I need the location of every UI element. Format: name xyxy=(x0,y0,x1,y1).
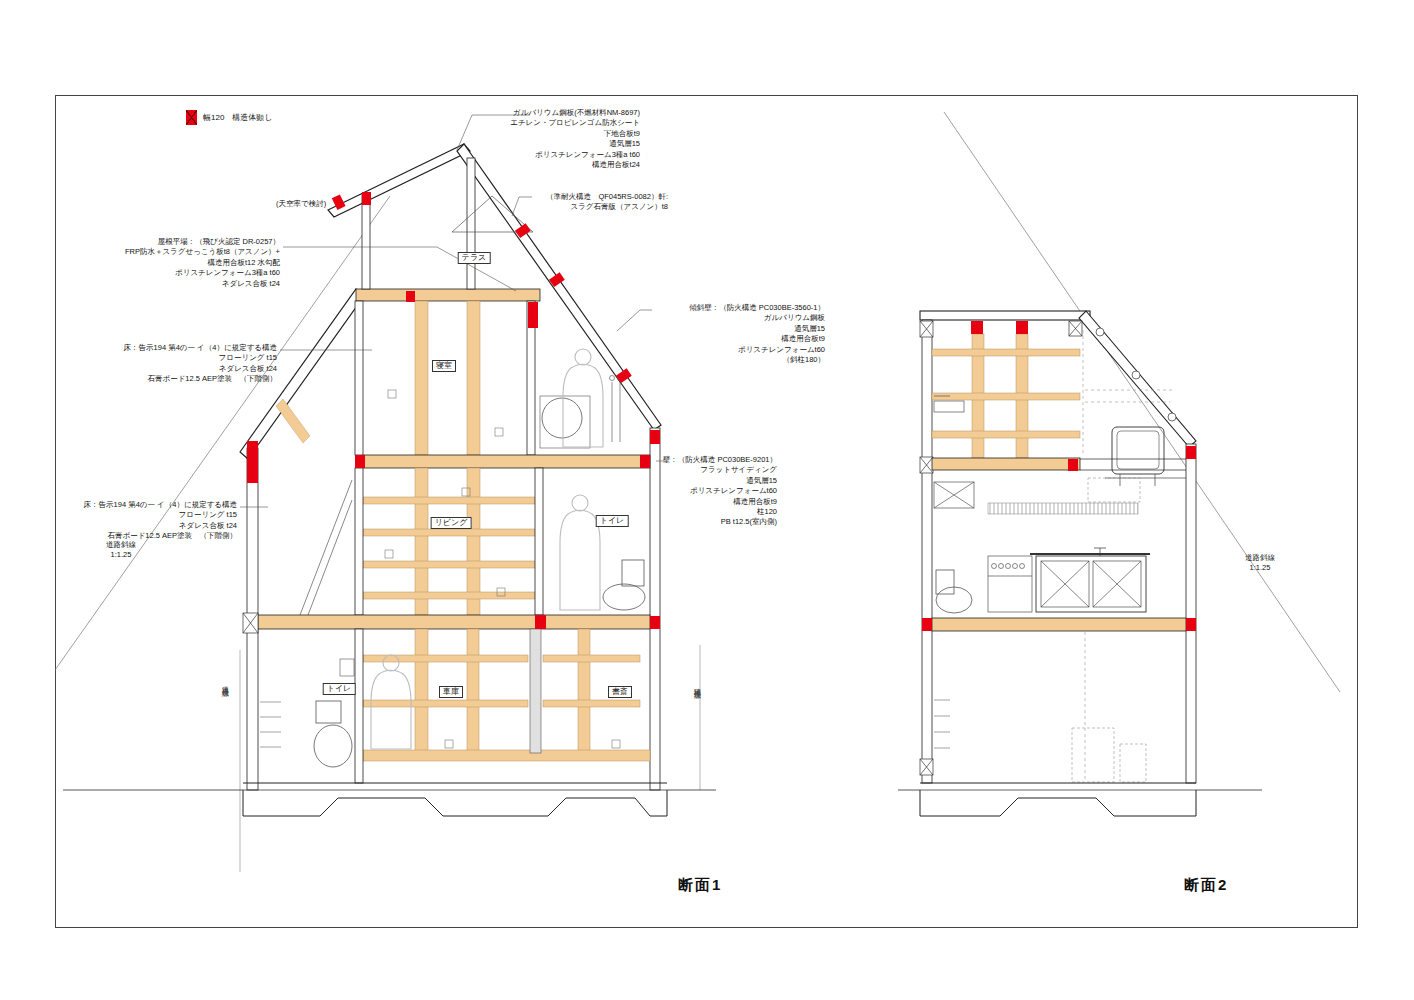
hatch-box xyxy=(243,613,258,633)
hatch-boxes-2 xyxy=(920,321,1082,775)
road-boundary-label: 道路境界線 xyxy=(220,680,230,685)
room-label-terrace: テラス xyxy=(458,252,491,264)
room-label-living: リビング xyxy=(431,517,472,529)
room-label-study: 書斎 xyxy=(608,686,632,698)
legend-red-swatch xyxy=(186,110,197,125)
ground-structure xyxy=(363,629,650,761)
ladder-rungs-left xyxy=(260,702,281,747)
terrace-deck xyxy=(356,289,540,301)
neighbor-boundary-label: 隣地境界線 xyxy=(692,682,702,687)
floor1-note: 床：告示194 第4の一 イ（4）に規定する構造 フローリング t15 ネダレス… xyxy=(17,500,237,542)
shower-fixture xyxy=(610,376,623,443)
flat-roof-note: 屋根平場：（飛び火認定 DR-0257） FRP防水＋スラグせっこう板t8（アス… xyxy=(60,237,280,289)
upper-cabinet-dashed xyxy=(1088,478,1140,502)
section1-title: 断面1 xyxy=(678,876,722,895)
floor-slab-2 xyxy=(932,618,1186,631)
inclined-wall-note: 傾斜壁：（防火構造 PC030BE-3560-1） ガルバリウム鋼板 通気層15… xyxy=(585,303,825,365)
human-figures xyxy=(371,349,603,749)
foundation-2 xyxy=(920,783,1196,816)
hidden-lines xyxy=(1083,330,1175,780)
kitchen-shelf xyxy=(988,556,1032,612)
toilet-fixture-2f xyxy=(603,560,645,610)
bathtub xyxy=(540,396,590,448)
road-slope-note-right: 道路斜線 1:1.25 xyxy=(1232,553,1288,574)
toilet-fixture-2 xyxy=(936,570,972,613)
washbasin-mid xyxy=(934,482,974,508)
legend-label: 幅120 構造体顕し xyxy=(203,112,273,123)
living-structure xyxy=(363,468,535,615)
toilet-fixture-1f xyxy=(314,659,354,767)
sky-factor-note: (天空率で検討) xyxy=(276,199,386,209)
room-label-toilet-lower: トイレ xyxy=(323,683,356,695)
roof-assembly-note: ガルバリウム鋼板(不燃材料NM-8697) エチレン・プロピレンゴム防水シート … xyxy=(340,108,640,170)
kitchen-counter xyxy=(1030,548,1150,612)
stairs xyxy=(300,480,352,615)
bathtub-2 xyxy=(1105,427,1186,486)
room-label-bedroom: 寝室 xyxy=(432,360,456,372)
floor2-note: 床：告示194 第4の一 イ（4）に規定する構造 フローリング t15 ネダレス… xyxy=(57,343,277,385)
tile-band xyxy=(988,503,1138,514)
drawing-sheet: { "colors": { "red": "#e60012", "wood": … xyxy=(0,0,1414,1000)
legend: 幅120 構造体顕し xyxy=(186,110,273,125)
future-equipment-dashed xyxy=(1072,728,1146,782)
bedroom-posts xyxy=(415,301,480,455)
floor-slab-1f xyxy=(258,615,650,629)
ladder-rungs-2 xyxy=(934,700,950,748)
road-slope-note-left: 道路斜線 1:1.25 xyxy=(93,540,149,561)
room-label-garage: 車庫 xyxy=(439,686,463,698)
eaves-note: （準耐火構造 QF045RS-0082）軒: スラグ石膏版（アスノン）t8 xyxy=(400,192,668,213)
section2-drawing xyxy=(920,311,1196,816)
wall-note: 壁：（防火構造 PC030BE-9201） フラットサイディング 通気層15 ポ… xyxy=(537,455,777,528)
room-label-toilet-upper: トイレ xyxy=(596,515,629,527)
section2-title: 断面2 xyxy=(1184,876,1228,895)
attic-structure xyxy=(932,334,1080,470)
foundation-1 xyxy=(243,783,667,816)
